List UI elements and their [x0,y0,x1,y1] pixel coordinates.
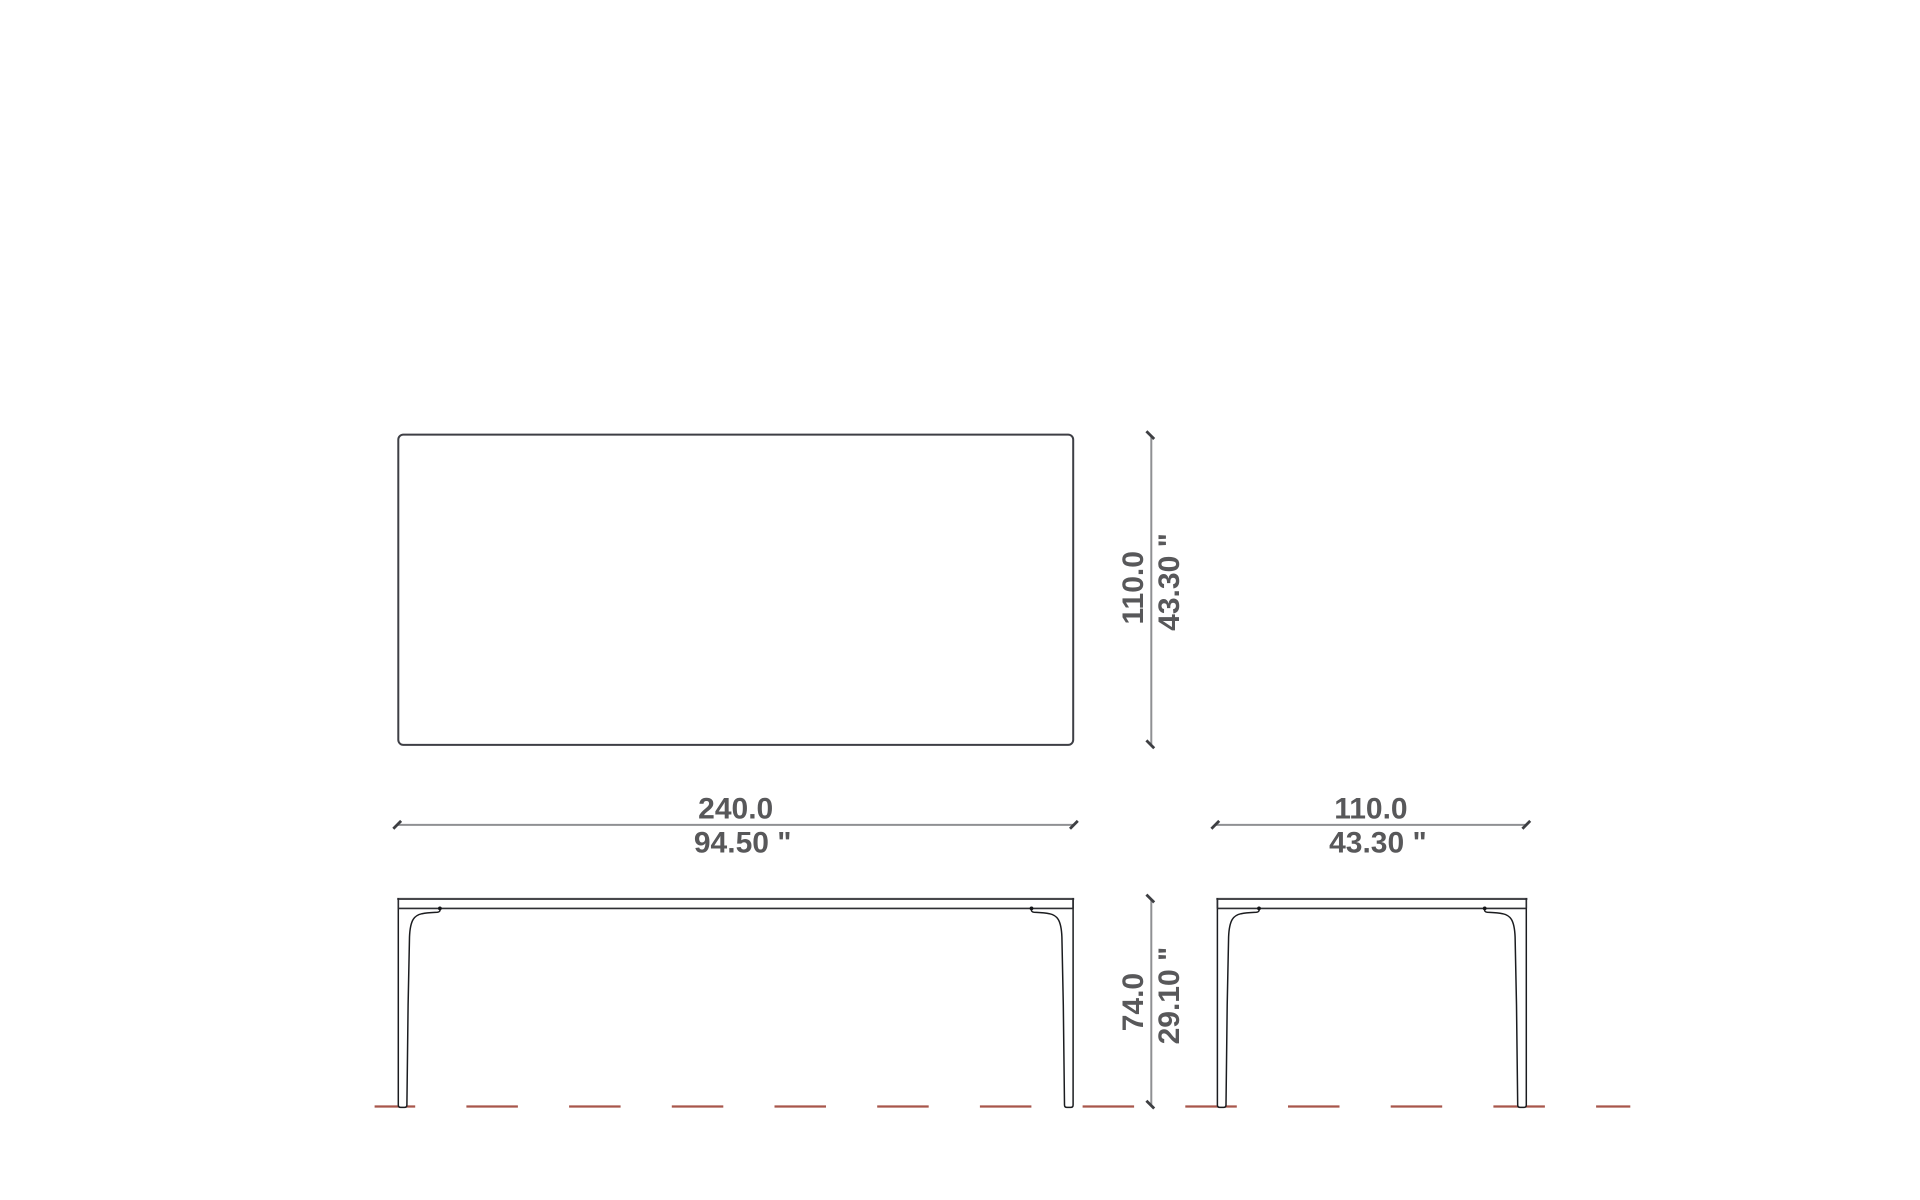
svg-text:29.10 ": 29.10 " [1153,947,1186,1045]
svg-text:240.0: 240.0 [698,793,773,826]
svg-text:110.0: 110.0 [1117,551,1150,624]
svg-text:94.50 ": 94.50 " [694,827,792,860]
svg-text:74.0: 74.0 [1117,973,1150,1031]
svg-text:110.0: 110.0 [1334,793,1407,826]
svg-text:43.30 ": 43.30 " [1329,827,1427,860]
svg-text:43.30 ": 43.30 " [1153,533,1186,631]
